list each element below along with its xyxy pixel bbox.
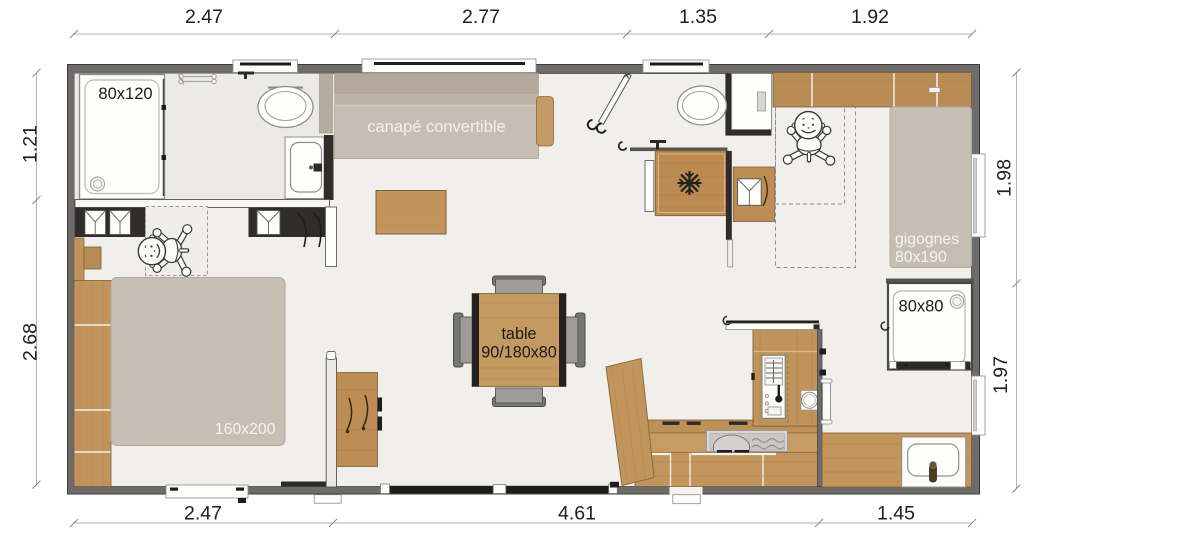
svg-text:80x190: 80x190 [895,249,947,266]
svg-text:2.77: 2.77 [462,6,500,28]
svg-text:1.21: 1.21 [20,125,42,163]
svg-text:80x80: 80x80 [899,298,944,316]
svg-text:90/180x80: 90/180x80 [481,344,557,362]
svg-text:80x120: 80x120 [98,85,152,103]
svg-text:2.68: 2.68 [20,323,42,361]
svg-text:1.97: 1.97 [990,356,1012,394]
svg-text:4.61: 4.61 [558,503,596,525]
svg-text:canapé convertible: canapé convertible [367,118,506,136]
svg-text:2.47: 2.47 [184,503,222,525]
svg-text:1.92: 1.92 [851,6,889,28]
svg-text:1.35: 1.35 [679,6,717,28]
svg-text:160x200: 160x200 [215,421,276,438]
svg-text:table: table [501,325,536,343]
svg-text:1.98: 1.98 [994,159,1016,197]
svg-text:2.47: 2.47 [185,6,223,28]
svg-text:gigognes: gigognes [895,231,959,248]
svg-text:1.45: 1.45 [877,503,915,525]
